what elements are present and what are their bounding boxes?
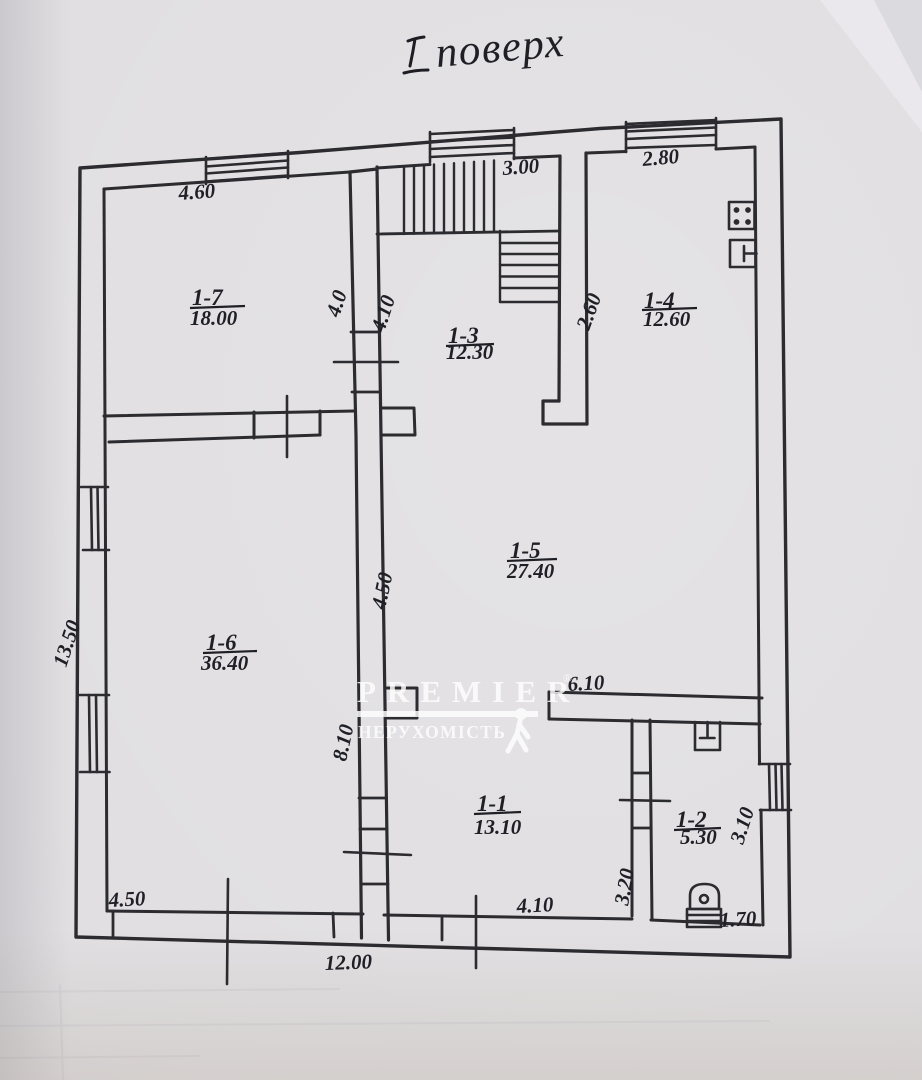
svg-text:12.00: 12.00: [324, 949, 373, 975]
svg-text:НЕРУХОМІСТЬ: НЕРУХОМІСТЬ: [358, 722, 506, 742]
svg-text:1.70: 1.70: [719, 906, 757, 932]
svg-text:13.10: 13.10: [474, 815, 522, 839]
svg-text:PREMIER: PREMIER: [357, 674, 580, 709]
svg-text:®: ®: [563, 671, 572, 685]
svg-text:36.40: 36.40: [200, 651, 249, 675]
svg-text:12.60: 12.60: [643, 307, 691, 331]
svg-text:5.30: 5.30: [680, 825, 717, 849]
svg-text:27.40: 27.40: [506, 559, 555, 583]
svg-text:18.00: 18.00: [190, 306, 238, 330]
svg-text:3.00: 3.00: [501, 153, 541, 180]
svg-text:2.80: 2.80: [640, 144, 680, 171]
svg-text:12.30: 12.30: [446, 340, 494, 364]
svg-text:4.10: 4.10: [515, 892, 554, 918]
svg-text:4.50: 4.50: [107, 886, 146, 912]
svg-text:4.60: 4.60: [177, 178, 217, 205]
